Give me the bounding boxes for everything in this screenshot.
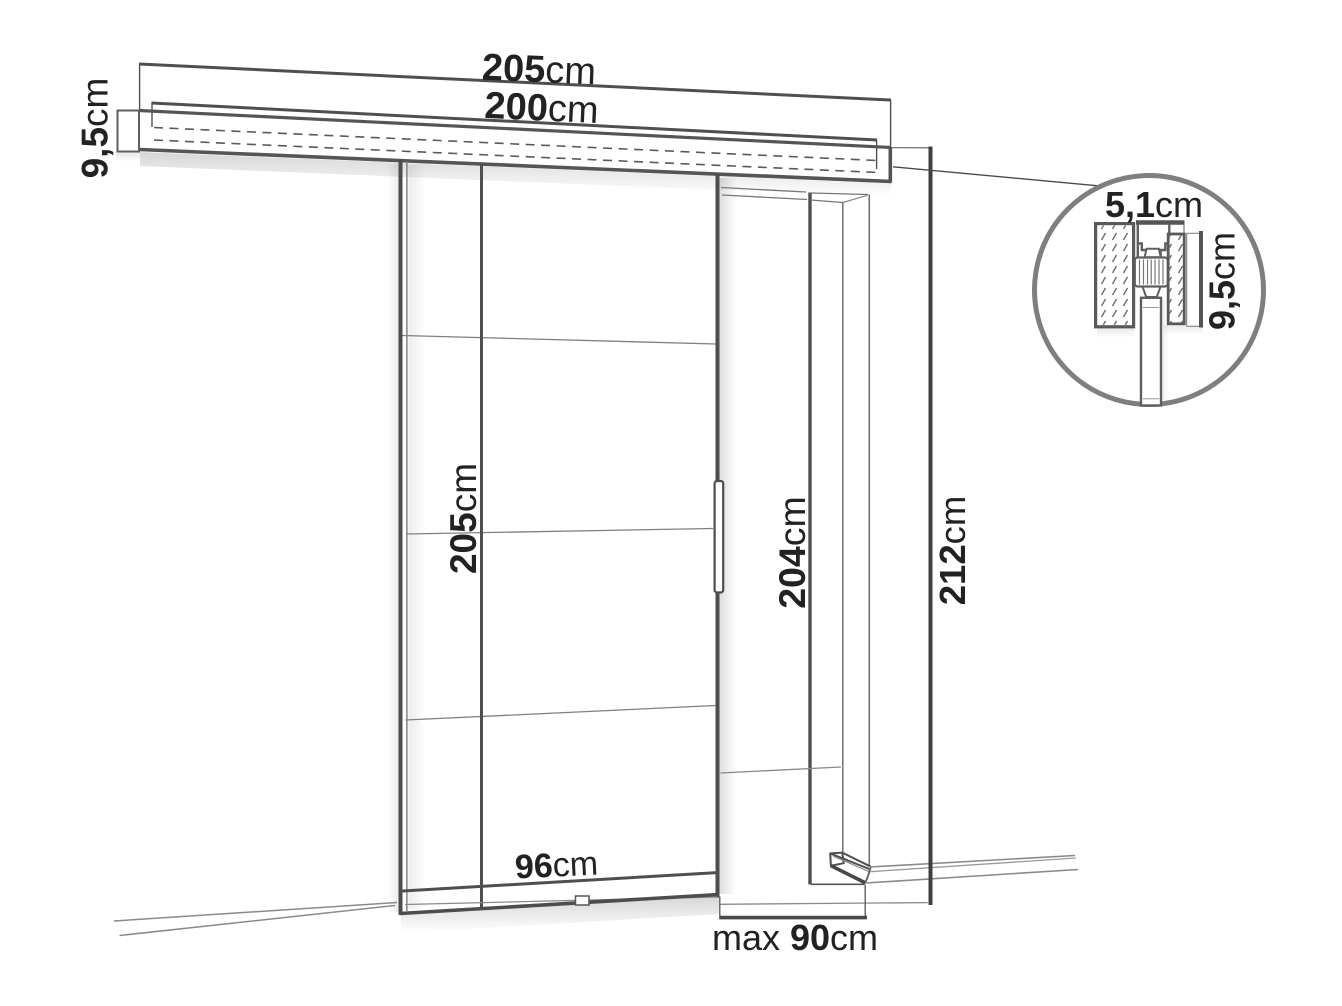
svg-text:9,5cm: 9,5cm <box>75 78 116 179</box>
svg-text:max 90cm: max 90cm <box>712 917 878 958</box>
svg-text:5,1cm: 5,1cm <box>1105 184 1203 225</box>
svg-text:9,5cm: 9,5cm <box>1202 232 1243 330</box>
svg-text:204cm: 204cm <box>771 496 813 609</box>
svg-text:96cm: 96cm <box>514 845 599 887</box>
svg-text:212cm: 212cm <box>932 496 973 606</box>
svg-text:205cm: 205cm <box>443 463 484 574</box>
svg-text:200cm: 200cm <box>484 85 600 132</box>
